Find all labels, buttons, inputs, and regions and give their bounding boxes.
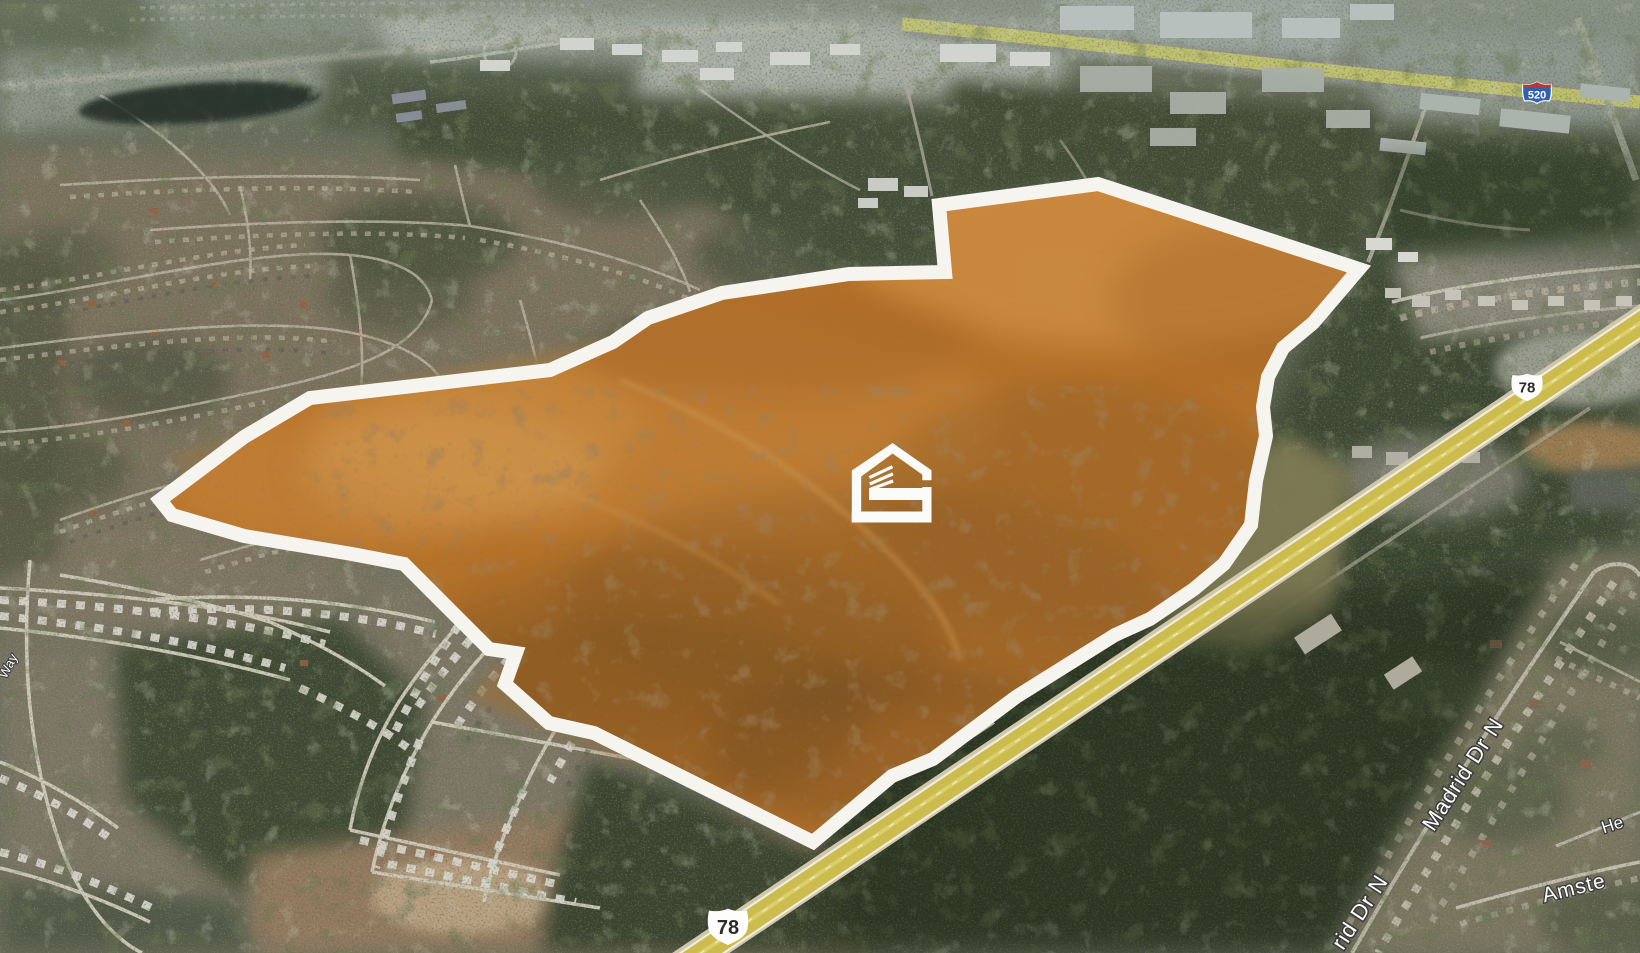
svg-text:78: 78 — [1519, 380, 1536, 397]
svg-text:520: 520 — [1528, 90, 1546, 102]
svg-text:78: 78 — [717, 917, 739, 939]
